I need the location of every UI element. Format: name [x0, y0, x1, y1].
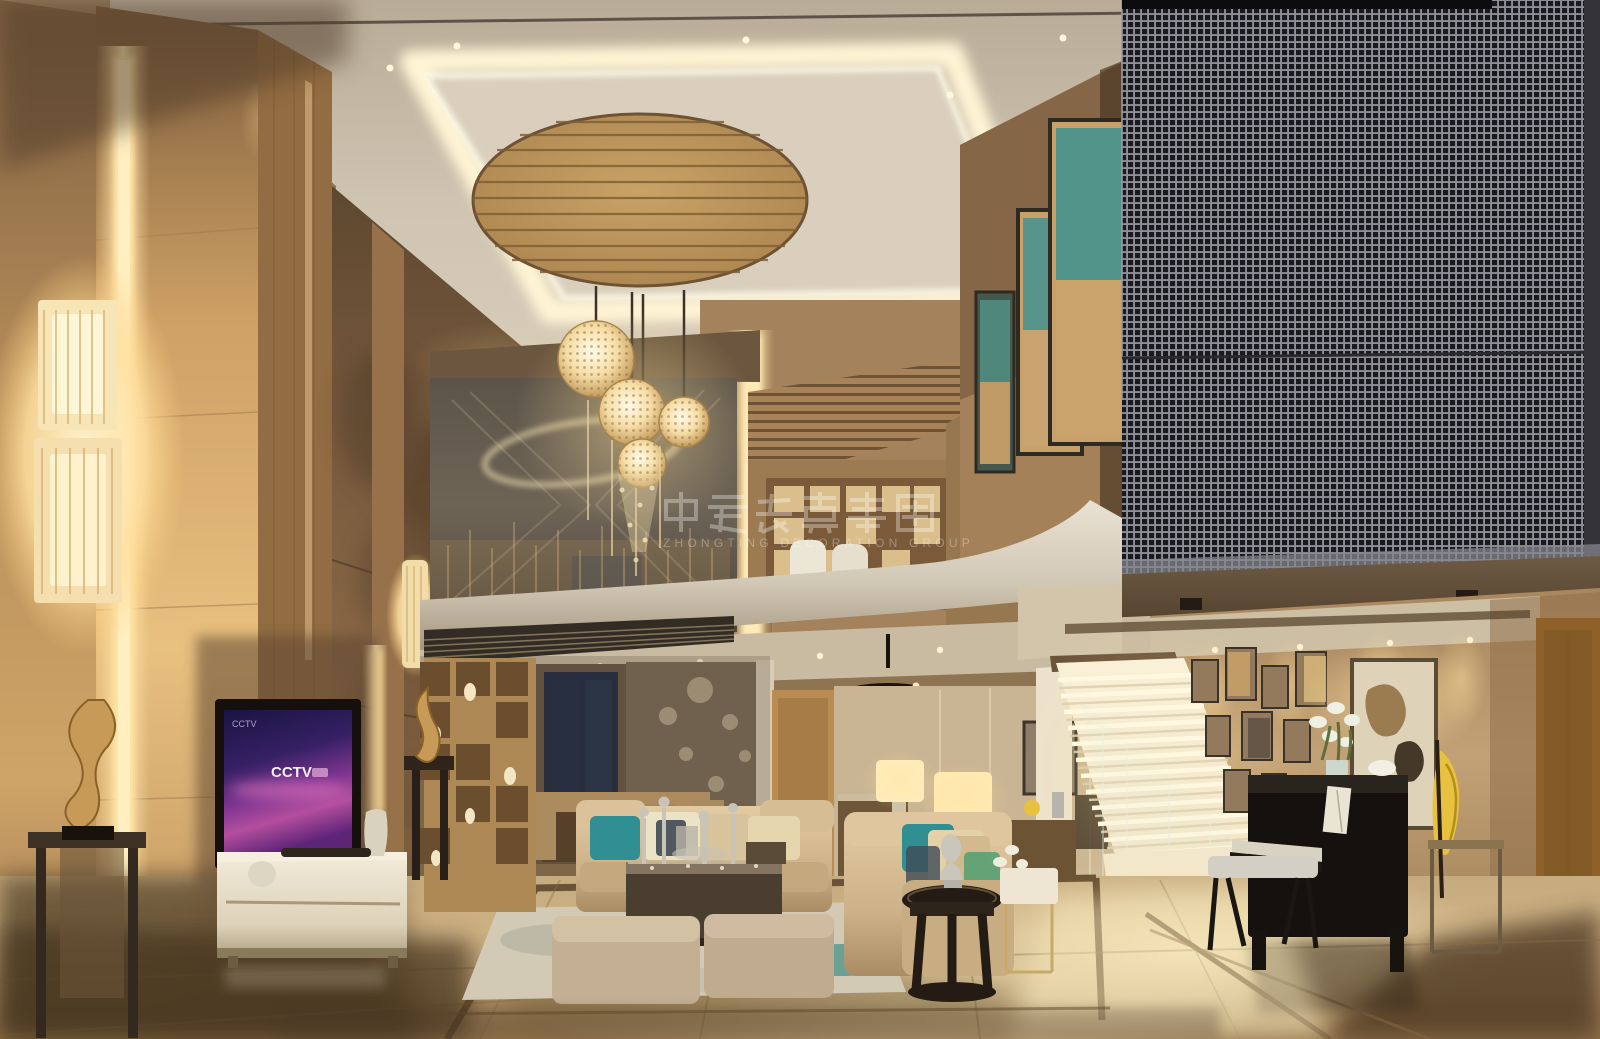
svg-text:ZHONGTING DECORATION GROUP: ZHONGTING DECORATION GROUP	[663, 536, 974, 550]
svg-text:CCTV: CCTV	[232, 719, 257, 729]
svg-text:CCTV: CCTV	[271, 764, 312, 781]
